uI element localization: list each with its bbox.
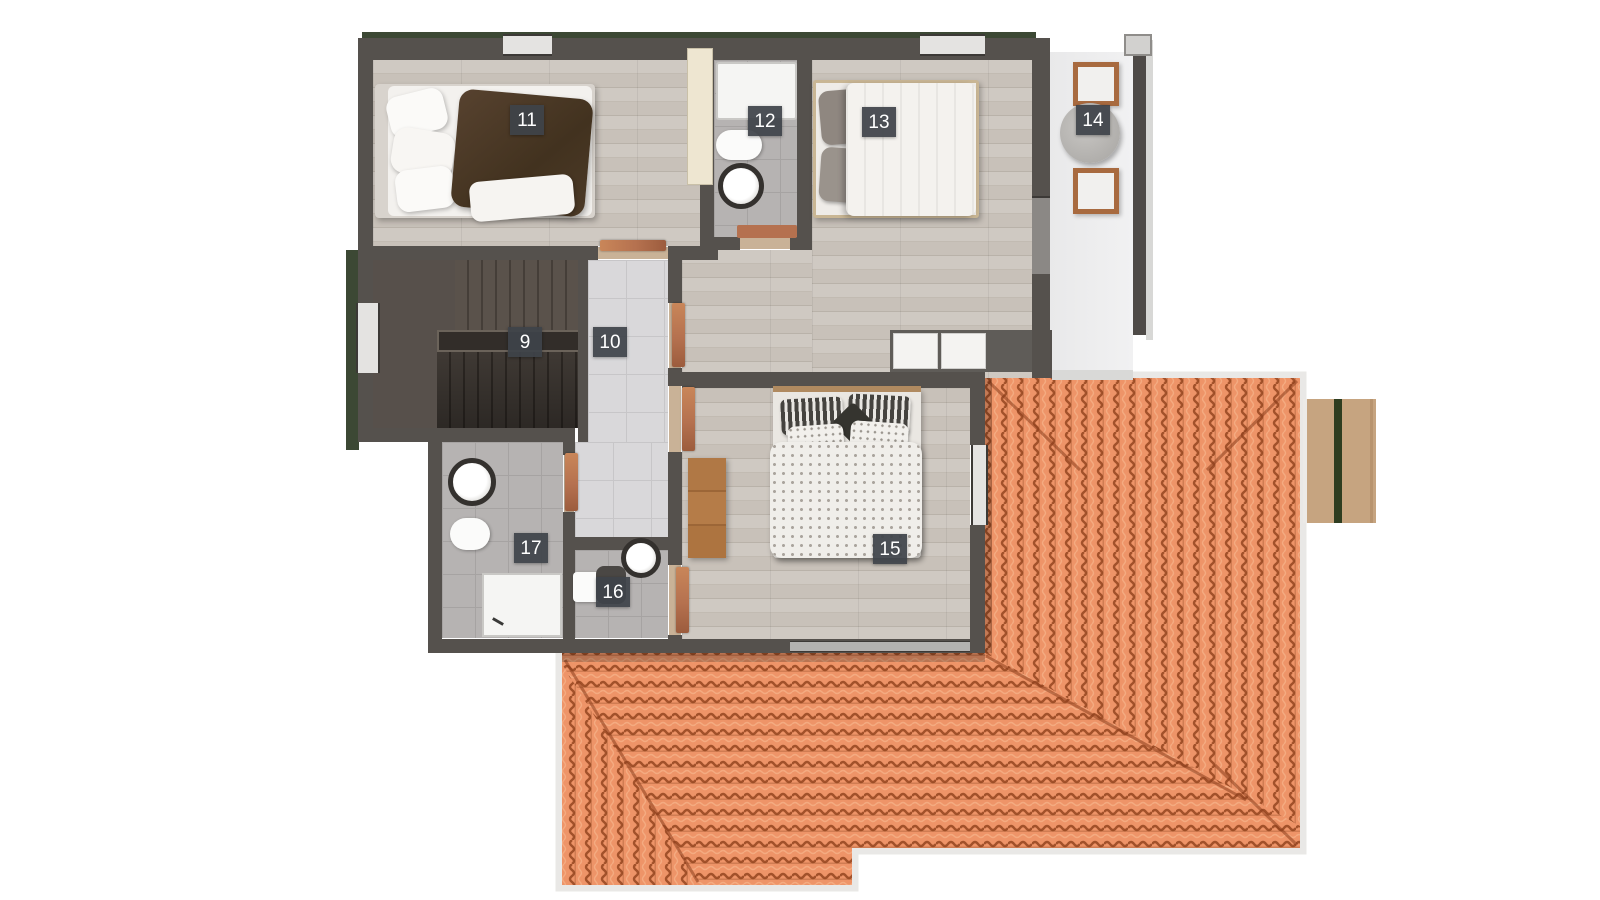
wall-left <box>358 38 373 442</box>
bottom-sliding-door <box>790 641 980 652</box>
wall-hall-east-2 <box>668 368 682 386</box>
room-badge-11: 11 <box>510 105 544 135</box>
door-bedroom-13 <box>672 303 685 367</box>
stairs-upper-flight <box>455 260 580 334</box>
bedroom-11-wardrobe <box>687 48 713 185</box>
door-bedroom-15 <box>682 387 695 451</box>
balcony-chair-2 <box>1073 168 1119 214</box>
wood-deck-stripe <box>1334 399 1342 523</box>
balcony-corner-cap <box>1124 34 1152 56</box>
wall-bath17-left <box>428 442 442 653</box>
bedroom-15-dresser <box>688 458 726 558</box>
stairs-lower-flight <box>437 352 580 428</box>
wall-bath12-bottom-w <box>700 237 740 250</box>
room-badge-12: 12 <box>748 106 782 136</box>
wall-bed15-right-s <box>970 525 985 653</box>
bedroom-13-top-window <box>920 34 985 56</box>
room-badge-13: 13 <box>862 107 896 137</box>
room-badge-9: 9 <box>508 327 542 357</box>
room-badge-17: 17 <box>514 533 548 563</box>
bath-17-shower <box>482 573 562 637</box>
bath-17-toilet <box>450 518 490 550</box>
wall-bath17-right-n <box>563 428 575 455</box>
wall-stairs-right <box>578 250 588 442</box>
floor-hallway-10-south <box>575 442 668 537</box>
balcony-railing-outer <box>1146 40 1153 340</box>
door-bedroom-11 <box>600 240 666 251</box>
bedroom-11-top-window <box>503 34 552 56</box>
stairs-left-window <box>356 303 380 373</box>
balcony-sliding-door <box>1032 196 1050 278</box>
floorplan-canvas: 9 10 11 12 13 14 15 16 17 <box>0 0 1600 900</box>
room-badge-16: 16 <box>596 577 630 607</box>
wall-hall-east-4 <box>668 635 682 643</box>
door-bathroom-16 <box>676 567 689 633</box>
bath-12-mat <box>737 225 797 238</box>
room-badge-15: 15 <box>873 534 907 564</box>
door-threshold-bath12 <box>740 238 790 249</box>
wall-mid-west <box>358 246 598 260</box>
wall-house-right-n <box>1032 38 1050 196</box>
bed-13-duvet <box>846 83 976 216</box>
door-bathroom-17 <box>565 453 578 511</box>
bed-11-pillow-3 <box>394 165 457 214</box>
bath-17-sink <box>448 458 496 506</box>
bed-15-headboard <box>773 386 921 392</box>
wall-bed15-right-n <box>970 372 985 445</box>
bath-12-sink <box>718 163 764 209</box>
dresser-drawer-1 <box>893 333 938 369</box>
wall-stairs-bottom <box>358 428 575 442</box>
bed15-right-window <box>971 445 988 525</box>
balcony-railing-right <box>1133 52 1146 335</box>
wall-bath12-bottom-e <box>790 237 812 250</box>
door-threshold-bed15 <box>669 386 681 452</box>
room-badge-14: 14 <box>1076 105 1110 135</box>
balcony-bottom-stub <box>1032 330 1052 378</box>
balcony-sill <box>1052 370 1133 380</box>
room-badge-10: 10 <box>593 327 627 357</box>
bath-16-sink <box>621 538 661 578</box>
balcony-chair-1 <box>1073 62 1119 106</box>
wall-hall-east-1 <box>668 250 682 303</box>
floor-bedroom-13-front <box>682 250 812 378</box>
dresser-drawer-2 <box>941 333 986 369</box>
wall-bath12-right <box>797 38 812 250</box>
roof-shadow-under-house <box>562 653 985 662</box>
